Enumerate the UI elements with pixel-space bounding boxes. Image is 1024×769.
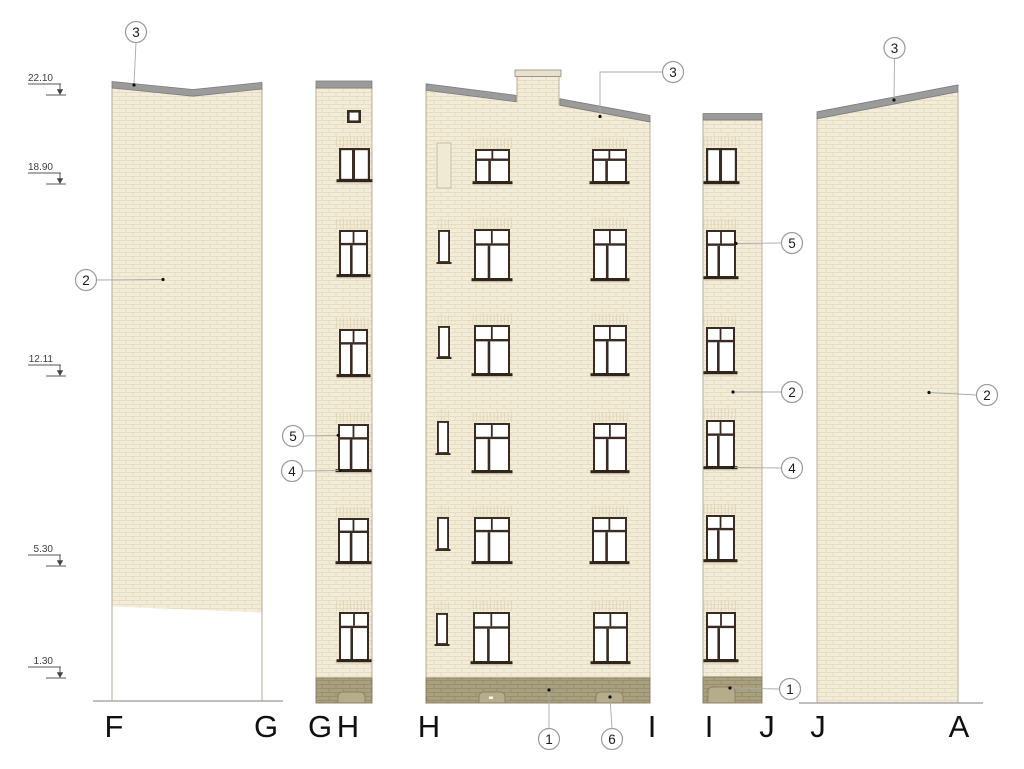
window-transom: [703, 316, 738, 375]
callout-number: 2: [82, 273, 90, 288]
elevation-marker-22-10: 22.10: [28, 73, 66, 95]
window-transom: [590, 601, 631, 665]
window-transom: [590, 314, 630, 377]
callout-number: 1: [786, 682, 794, 697]
window-transom: [471, 506, 513, 565]
fg-wall: [112, 88, 262, 613]
window-transom: [470, 601, 513, 665]
axis-label-f: F: [105, 709, 124, 744]
axis-label-h2: H: [418, 709, 440, 744]
ij-wall: [703, 120, 762, 677]
callout-number: 2: [788, 385, 796, 400]
window-transom: [590, 218, 630, 282]
ja-wall: [817, 92, 958, 703]
window-transom: [472, 138, 513, 185]
drawing-canvas: 22.10 18.90 12.11 5.30 1.30 3 2: [0, 0, 1024, 769]
hi-chimney-cap: [515, 70, 561, 77]
callout-number: 3: [669, 65, 677, 80]
window-transom: [336, 318, 371, 378]
elevation-marker-5-30: 5.30: [28, 544, 66, 566]
window-attic-square: [347, 110, 361, 123]
axis-label-j1: J: [759, 709, 775, 744]
axis-label-g2: G: [308, 709, 332, 744]
callout-number: 6: [608, 732, 616, 747]
ij-base-arch: [708, 687, 735, 703]
elevation-value: 5.30: [34, 544, 54, 555]
gh-roof-cap: [316, 81, 372, 88]
callout-number: 1: [545, 732, 553, 747]
hi-wall-recess: [437, 143, 451, 188]
callout-number: 4: [788, 461, 796, 476]
window-transom: [336, 601, 372, 663]
callout-number: 3: [891, 41, 899, 56]
axis-label-a: A: [949, 709, 970, 744]
axis-labels: F G G H H I I J J A: [105, 709, 970, 744]
window-transom: [335, 507, 372, 565]
window-transom: [471, 412, 513, 474]
callout-number: 3: [132, 25, 140, 40]
elevation-marker-1-30: 1.30: [28, 656, 66, 678]
window-transom: [335, 413, 372, 473]
window-narrow: [434, 602, 450, 646]
elevation-f-g: [93, 82, 283, 702]
elevation-value: 18.90: [28, 162, 53, 173]
callout-number: 4: [288, 464, 296, 479]
window-narrow: [436, 315, 452, 359]
callout-number: 5: [289, 429, 297, 444]
callout-ja-roof: 3: [884, 38, 905, 102]
elevation-value: 22.10: [28, 73, 53, 84]
callout-number: 5: [788, 236, 796, 251]
axis-label-i2: I: [705, 709, 714, 744]
elevation-marker-12-11: 12.11: [28, 354, 66, 376]
window-transom: [589, 506, 630, 565]
axis-label-h1: H: [337, 709, 359, 744]
window-transom: [703, 219, 739, 280]
gh-base-arch: [338, 692, 365, 703]
callout-hi-arch: 6: [602, 695, 623, 749]
ij-roof-cap: [703, 114, 762, 121]
window-two-pane: [336, 137, 373, 183]
elevation-value: 12.11: [29, 354, 54, 365]
window-narrow: [435, 506, 451, 551]
callout-fg-top: 3: [126, 22, 147, 87]
window-transom: [703, 504, 738, 563]
window-transom: [590, 412, 630, 474]
callout-number: 2: [983, 388, 991, 403]
window-narrow: [435, 410, 451, 455]
window-transom: [703, 601, 739, 663]
elevation-drawing-sheet: 22.10 18.90 12.11 5.30 1.30 3 2: [0, 0, 1024, 769]
axis-label-i1: I: [648, 709, 657, 744]
axis-label-j2: J: [810, 709, 826, 744]
window-transom: [703, 409, 738, 470]
axis-label-g1: G: [254, 709, 278, 744]
window-transom: [589, 138, 630, 185]
window-transom: [471, 218, 513, 282]
elevation-value: 1.30: [34, 656, 54, 667]
window-transom: [336, 219, 371, 278]
window-narrow: [436, 219, 452, 264]
window-two-pane: [703, 137, 740, 185]
elevation-marker-18-90: 18.90: [28, 162, 66, 184]
hi-base-arch-highlight: [489, 697, 493, 700]
window-transom: [471, 314, 513, 377]
